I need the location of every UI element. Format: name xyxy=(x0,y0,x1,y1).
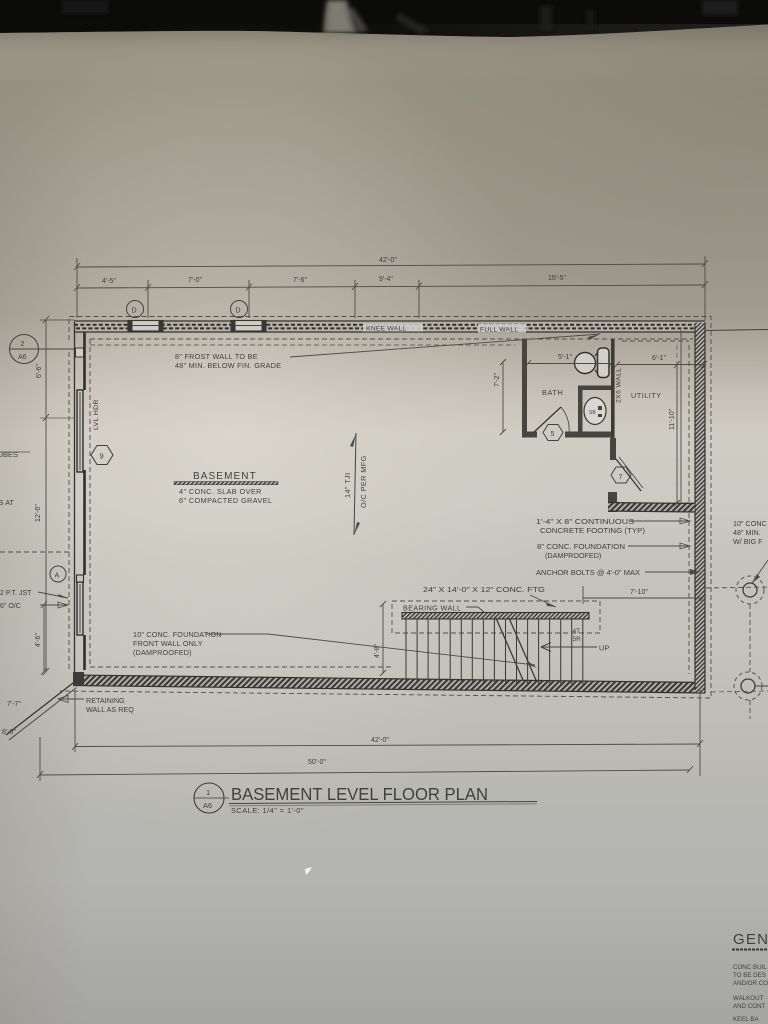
svg-text:5: 5 xyxy=(551,431,555,438)
svg-text:D: D xyxy=(236,308,241,315)
svg-text:CONC BUIL: CONC BUIL xyxy=(733,964,767,971)
svg-text:ANCHOR BOLTS @ 4'-0" MAX: ANCHOR BOLTS @ 4'-0" MAX xyxy=(536,568,640,577)
svg-text:(DAMPROOFED): (DAMPROOFED) xyxy=(545,551,601,560)
svg-text:8" CONC. FOUNDATION: 8" CONC. FOUNDATION xyxy=(537,542,625,551)
svg-text:WALKOUT: WALKOUT xyxy=(733,995,764,1002)
svg-text:O/C PER MFG: O/C PER MFG xyxy=(359,455,368,508)
svg-text:SB: SB xyxy=(589,410,596,416)
svg-text:4T: 4T xyxy=(573,628,581,635)
svg-text:D: D xyxy=(132,308,137,315)
svg-text:1: 1 xyxy=(206,788,210,797)
svg-text:14" TJI: 14" TJI xyxy=(343,472,352,498)
svg-text:5'-1": 5'-1" xyxy=(558,354,572,361)
svg-text:6'-6": 6'-6" xyxy=(36,364,43,378)
svg-text:15'-5": 15'-5" xyxy=(548,275,566,282)
svg-text:42'-0": 42'-0" xyxy=(371,737,389,744)
svg-text:10" CONC: 10" CONC xyxy=(733,519,767,528)
svg-text:KNEE WALL: KNEE WALL xyxy=(366,326,406,333)
svg-text:42'-0": 42'-0" xyxy=(379,257,397,264)
svg-text:7'-7": 7'-7" xyxy=(7,701,21,708)
svg-text:12'-6": 12'-6" xyxy=(35,504,42,522)
svg-text:TO BE DES: TO BE DES xyxy=(733,972,766,979)
svg-text:AND CONT: AND CONT xyxy=(733,1003,766,1010)
svg-text:8'-0": 8'-0" xyxy=(2,729,16,736)
svg-text:48" MIN.: 48" MIN. xyxy=(733,528,761,537)
svg-text:BEARING WALL: BEARING WALL xyxy=(403,604,461,613)
svg-text:WALL AS REQ: WALL AS REQ xyxy=(86,705,134,714)
svg-text:7'-0": 7'-0" xyxy=(188,277,202,284)
svg-text:BASEMENT: BASEMENT xyxy=(193,471,257,482)
svg-text:10" CONC. FOUNDATION: 10" CONC. FOUNDATION xyxy=(133,630,222,639)
svg-text:2X6 WALL: 2X6 WALL xyxy=(616,368,623,403)
svg-text:UP: UP xyxy=(599,644,610,653)
svg-text:FULL WALL: FULL WALL xyxy=(480,327,518,334)
svg-text:1'-4" X 8" CONTINUOUS: 1'-4" X 8" CONTINUOUS xyxy=(536,517,634,526)
svg-text:50'-0": 50'-0" xyxy=(308,759,326,766)
svg-text:4'-6": 4'-6" xyxy=(35,633,42,647)
svg-text:GENER: GENER xyxy=(733,931,768,948)
svg-text:BATH: BATH xyxy=(542,388,563,397)
svg-text:9: 9 xyxy=(100,452,104,461)
svg-text:9'-4": 9'-4" xyxy=(379,276,393,283)
svg-text:4'-5": 4'-5" xyxy=(102,278,116,285)
svg-text:7'-2": 7'-2" xyxy=(494,373,501,387)
svg-text:UTILITY: UTILITY xyxy=(631,391,662,400)
svg-text:ES AT: ES AT xyxy=(0,498,14,507)
svg-text:5R: 5R xyxy=(573,636,582,643)
svg-text:6'-1": 6'-1" xyxy=(652,355,666,362)
svg-text:7'-10": 7'-10" xyxy=(630,589,648,596)
svg-text:RETAINING: RETAINING xyxy=(86,696,125,705)
svg-text:48" MIN. BELOW FIN. GRADE: 48" MIN. BELOW FIN. GRADE xyxy=(175,361,281,370)
svg-text:11'-10": 11'-10" xyxy=(669,408,676,430)
svg-text:TUBES: TUBES xyxy=(0,450,18,459)
svg-text:AND/OR CO: AND/OR CO xyxy=(733,980,768,987)
svg-text:KEEL BA: KEEL BA xyxy=(733,1016,759,1023)
svg-text:2 P.T. JST: 2 P.T. JST xyxy=(0,590,32,597)
svg-text:24" X 14'-0" X 12" CONC. FTG: 24" X 14'-0" X 12" CONC. FTG xyxy=(423,585,545,594)
svg-text:CONCRETE FOOTING (TYP): CONCRETE FOOTING (TYP) xyxy=(540,526,645,535)
svg-text:7'-6": 7'-6" xyxy=(293,277,307,284)
svg-text:FRONT WALL ONLY: FRONT WALL ONLY xyxy=(133,639,203,648)
svg-text:4'-8": 4'-8" xyxy=(374,644,381,658)
svg-text:A6: A6 xyxy=(203,801,212,810)
svg-text:8" FROST WALL TO BE: 8" FROST WALL TO BE xyxy=(175,352,258,361)
svg-text:LVL HDR: LVL HDR xyxy=(93,399,100,430)
svg-text:4" CONC. SLAB OVER: 4" CONC. SLAB OVER xyxy=(179,487,262,496)
svg-text:7: 7 xyxy=(619,474,623,481)
svg-text:6" O/C: 6" O/C xyxy=(0,603,21,610)
svg-text:2: 2 xyxy=(21,341,25,348)
svg-text:(DAMPROOFED): (DAMPROOFED) xyxy=(133,648,192,657)
svg-text:SCALE: 1/4" = 1'-0": SCALE: 1/4" = 1'-0" xyxy=(231,806,304,815)
svg-text:BASEMENT LEVEL FLOOR PLAN: BASEMENT LEVEL FLOOR PLAN xyxy=(231,784,488,804)
svg-text:A6: A6 xyxy=(18,354,27,361)
svg-text:6" COMPACTED GRAVEL: 6" COMPACTED GRAVEL xyxy=(179,496,272,505)
svg-text:A: A xyxy=(55,573,60,580)
svg-text:W/ BIG F: W/ BIG F xyxy=(733,537,763,546)
